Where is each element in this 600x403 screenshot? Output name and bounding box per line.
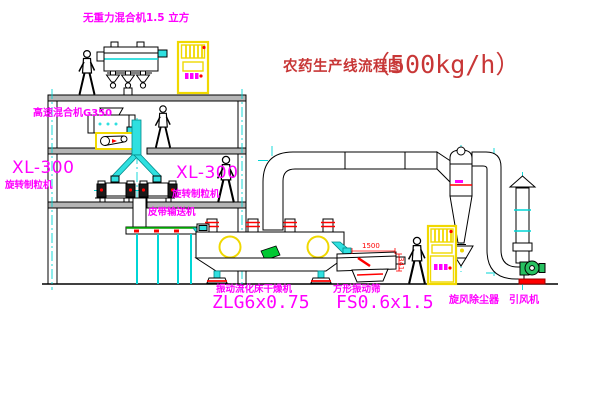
label-high-speed-mixer: 高速混合机G350 [33, 109, 112, 119]
label-granulator-right-name: 旋转制粒机 [172, 190, 220, 200]
exhaust-stack [510, 176, 535, 263]
label-granulator-left-model: XL-300 [12, 160, 74, 177]
dimension-width-value: 1500 [362, 243, 380, 250]
exhaust-duct [263, 152, 437, 230]
granulator-left [95, 176, 135, 202]
label-screen-model: FS0.6x1.5 [336, 294, 434, 312]
label-dryer-model: ZLG6x0.75 [212, 294, 310, 312]
mixer-discharge-funnels [107, 71, 150, 88]
diagram-capacity: （500kg/h） [365, 52, 520, 77]
dimension-height-value: 341 [397, 257, 404, 270]
label-cyclone: 旋风除尘器 [449, 296, 499, 306]
label-belt-conveyor: 皮带输送机 [148, 208, 196, 218]
induced-draft-fan [519, 261, 545, 284]
dryer-supports [207, 271, 331, 283]
operator-figure-1 [79, 51, 95, 95]
cabinet-indicator-marks [434, 264, 448, 270]
cabinet-indicator-marks [185, 73, 199, 79]
label-gravity-mixer: 无重力混合机1.5 立方 [83, 13, 189, 24]
control-cabinet-1 [178, 42, 208, 93]
operator-figure-4 [409, 237, 425, 283]
gravity-mixer [97, 42, 167, 95]
label-granulator-right-model: XL-300 [176, 165, 238, 182]
square-vibrating-screen [337, 248, 405, 282]
label-induced-draft-fan: 引风机 [509, 296, 539, 306]
control-cabinet-2 [428, 226, 456, 284]
label-granulator-left-name: 旋转制粒机 [5, 181, 53, 191]
flow-diagram-canvas: 农药生产线流程图 （500kg/h） 无重力混合机1.5 立方 高速混合机G35… [0, 0, 600, 403]
operator-figure-2 [155, 106, 170, 148]
